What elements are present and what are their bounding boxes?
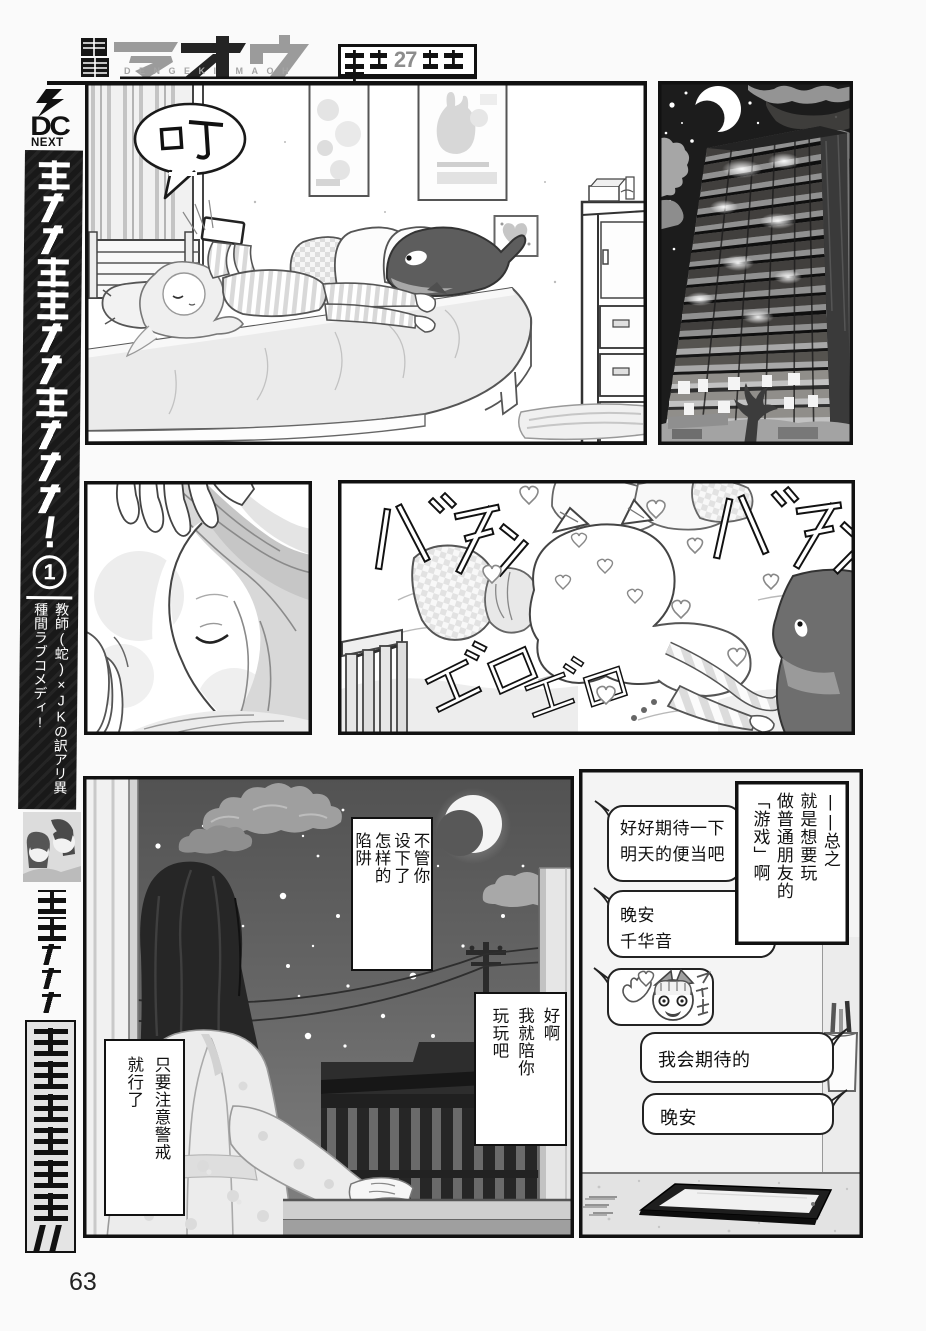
svg-text:DENGEKI MAOH: DENGEKI MAOH — [124, 66, 297, 76]
svg-text:NEXT: NEXT — [31, 137, 64, 149]
